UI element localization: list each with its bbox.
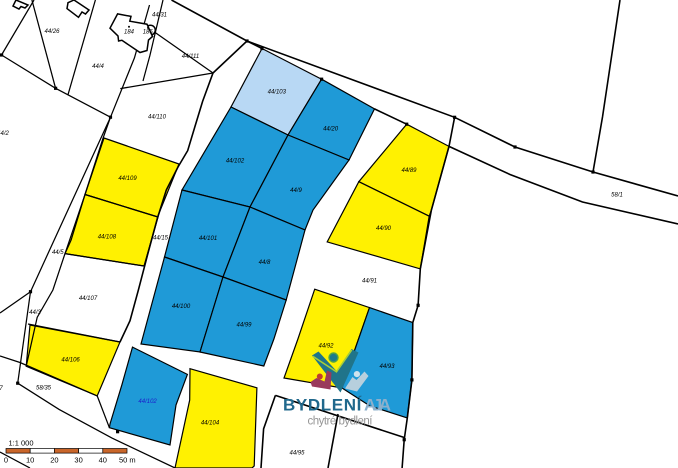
svg-text:50 m: 50 m [119, 456, 136, 465]
svg-text:44/102: 44/102 [226, 159, 245, 165]
svg-text:44/5: 44/5 [52, 250, 64, 256]
svg-text:0: 0 [4, 456, 8, 465]
svg-text:1:1 000: 1:1 000 [9, 439, 34, 448]
svg-text:44/26: 44/26 [44, 29, 60, 35]
svg-text:44/90: 44/90 [376, 226, 392, 232]
svg-text:44/100: 44/100 [172, 304, 191, 310]
svg-text:44/110: 44/110 [148, 115, 167, 121]
svg-text:44/103: 44/103 [268, 90, 287, 96]
svg-text:44/102: 44/102 [138, 399, 157, 405]
svg-text:44/31: 44/31 [152, 13, 167, 19]
svg-text:44/106: 44/106 [61, 357, 80, 363]
svg-text:30: 30 [74, 456, 82, 465]
svg-text:BYDLENÍ: BYDLENÍ [283, 396, 363, 415]
svg-text:44/108: 44/108 [98, 235, 117, 241]
svg-text:44/92: 44/92 [318, 344, 334, 350]
svg-text:185: 185 [143, 30, 154, 36]
svg-text:44/4: 44/4 [92, 64, 104, 70]
svg-text:44/99: 44/99 [236, 323, 252, 329]
svg-text:20: 20 [50, 456, 58, 465]
svg-text:44/20: 44/20 [323, 126, 339, 132]
svg-text:44/3: 44/3 [29, 310, 41, 316]
svg-text:44/91: 44/91 [362, 279, 377, 285]
svg-text:44/111: 44/111 [182, 54, 199, 60]
svg-text:44/101: 44/101 [199, 236, 217, 242]
svg-text:44/104: 44/104 [201, 421, 220, 427]
svg-text:44/107: 44/107 [79, 296, 98, 302]
svg-text:58/35: 58/35 [36, 386, 52, 392]
svg-text:44/8: 44/8 [259, 260, 271, 266]
svg-text:44/89: 44/89 [401, 168, 417, 174]
svg-text:58/1: 58/1 [611, 193, 623, 199]
svg-text:184: 184 [124, 29, 135, 35]
svg-text:44/93: 44/93 [379, 364, 395, 370]
svg-text:44/109: 44/109 [118, 176, 137, 182]
svg-text:44/95: 44/95 [289, 451, 305, 457]
svg-text:44/15: 44/15 [153, 236, 169, 242]
svg-text:10: 10 [26, 456, 34, 465]
svg-text:AJA: AJA [364, 396, 391, 415]
svg-text:44/2: 44/2 [0, 131, 9, 137]
svg-text:40: 40 [99, 456, 107, 465]
svg-text:chytré bydlení: chytré bydlení [308, 416, 374, 428]
svg-text:44/9: 44/9 [290, 188, 302, 194]
